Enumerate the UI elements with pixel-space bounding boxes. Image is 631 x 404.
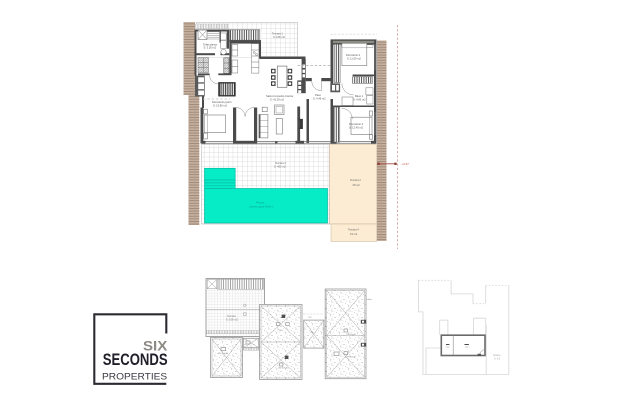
svg-text:S: 11.09 m2: S: 11.09 m2 [347, 57, 361, 61]
svg-text:S: m2: S: m2 [494, 358, 501, 361]
svg-text:S: 108 m2: S: 108 m2 [273, 35, 285, 39]
svg-text:S: 41.29 m2: S: 41.29 m2 [270, 98, 285, 102]
svg-text:Bano 1: Bano 1 [355, 94, 364, 98]
svg-text:Piscina: Piscina [256, 201, 265, 205]
svg-text:S: 450 m2: S: 450 m2 [274, 165, 286, 169]
svg-text:VM: VM [279, 330, 282, 332]
svg-text:15 m2: 15 m2 [350, 232, 358, 236]
svg-text:Lamina agua 40x8 m: Lamina agua 40x8 m [249, 205, 273, 209]
svg-text:PROPERTIES: PROPERTIES [102, 372, 167, 382]
svg-text:Dormitorio 3: Dormitorio 3 [349, 122, 364, 126]
svg-text:Terraza: Terraza [227, 314, 236, 318]
svg-text:Paso: Paso [315, 93, 321, 97]
svg-text:VM 40x40: VM 40x40 [346, 334, 357, 336]
svg-text:Dormitorio ppal 1: Dormitorio ppal 1 [212, 100, 232, 104]
svg-text:VM 40x40: VM 40x40 [346, 357, 357, 359]
svg-text:faldon: faldon [366, 299, 373, 301]
svg-text:Terraza 2: Terraza 2 [350, 178, 361, 182]
svg-text:Terraza 4: Terraza 4 [348, 228, 359, 232]
svg-text:S: 108 m2: S: 108 m2 [226, 318, 238, 322]
svg-text:VM: VM [308, 317, 311, 319]
svg-text:S: 3.26 m2: S: 3.26 m2 [204, 46, 217, 50]
svg-text:S: 15.80 m2: S: 15.80 m2 [213, 104, 228, 108]
svg-text:S: 4.60 m2: S: 4.60 m2 [353, 98, 366, 102]
svg-text:Salon-Comedor-Cocina: Salon-Comedor-Cocina [266, 94, 294, 98]
svg-text:VM 40x40: VM 40x40 [278, 368, 289, 370]
svg-text:+0.97: +0.97 [402, 162, 410, 166]
svg-text:S: 4.49 m2: S: 4.49 m2 [313, 97, 326, 101]
svg-text:SECONDS: SECONDS [103, 351, 168, 369]
svg-text:VM 40x40: VM 40x40 [218, 353, 229, 355]
svg-text:Terraza 3: Terraza 3 [275, 161, 286, 165]
svg-text:Dormitorio 2: Dormitorio 2 [346, 53, 361, 57]
svg-text:28 m2: 28 m2 [353, 183, 361, 187]
svg-text:S: 12.45 m2: S: 12.45 m2 [349, 126, 364, 130]
svg-text:Terraza 1: Terraza 1 [272, 32, 283, 36]
svg-text:VM: VM [310, 332, 313, 334]
